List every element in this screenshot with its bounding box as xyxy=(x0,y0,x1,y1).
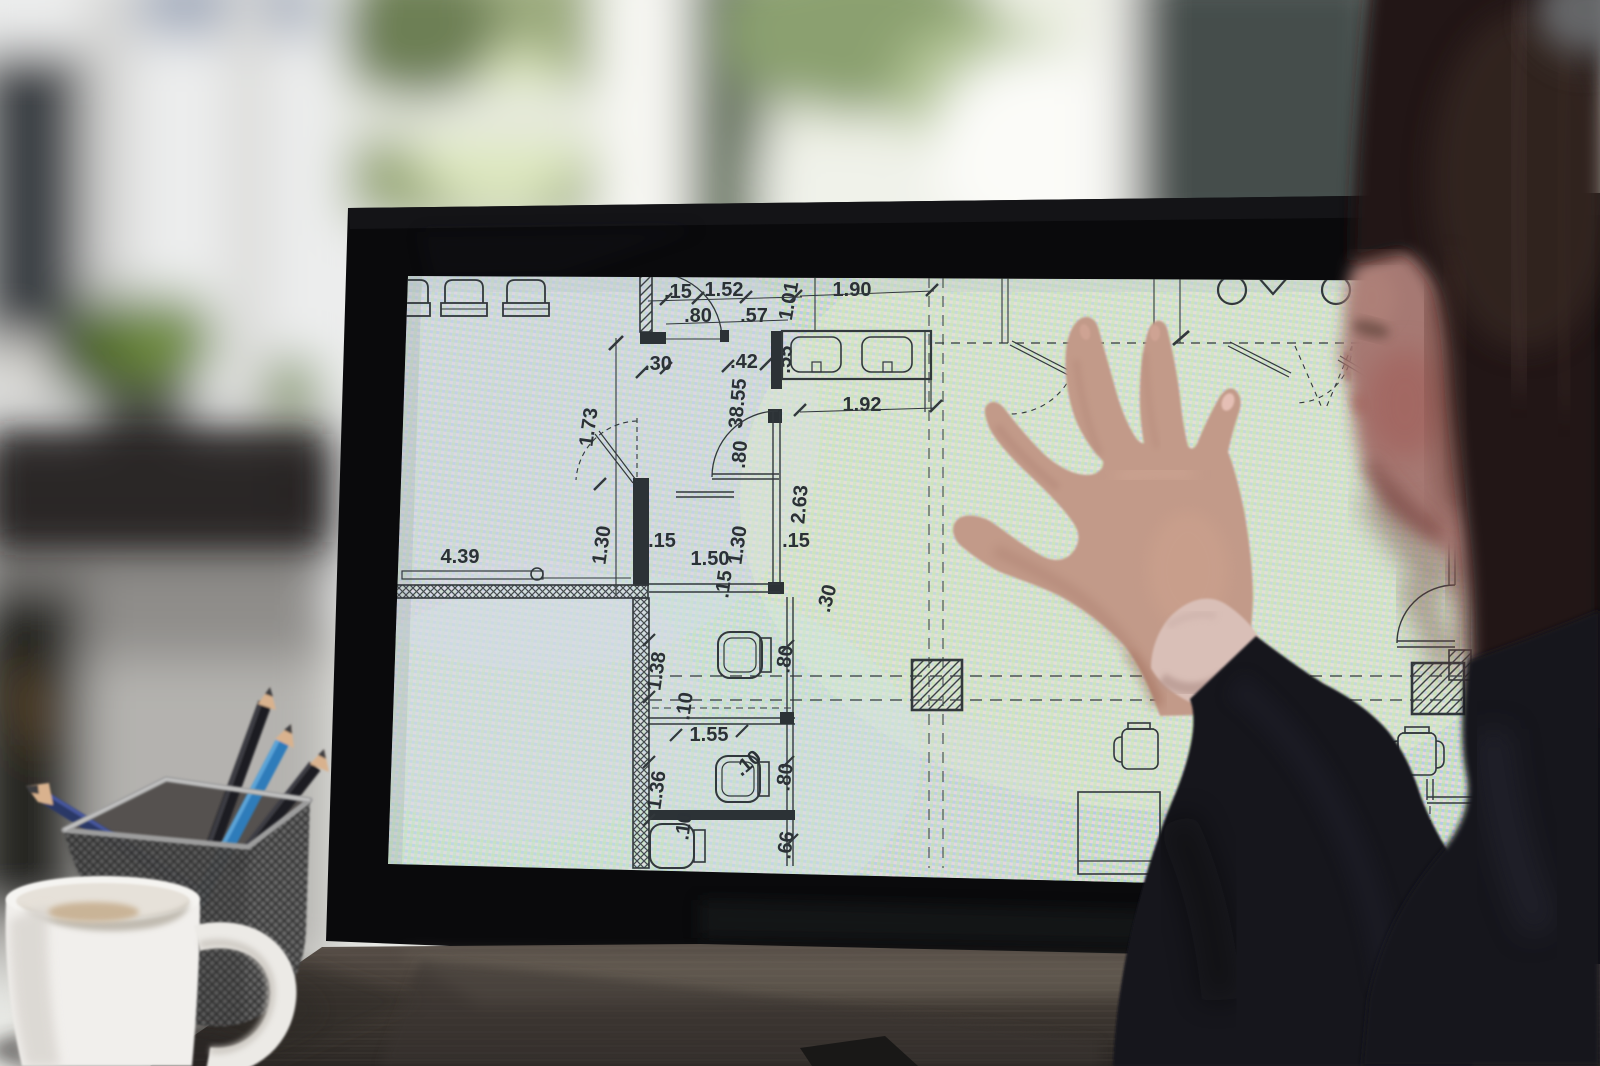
svg-text:4.39: 4.39 xyxy=(441,546,480,568)
svg-text:1.50: 1.50 xyxy=(691,548,730,570)
svg-text:.57: .57 xyxy=(740,305,768,327)
svg-text:.80: .80 xyxy=(728,440,752,470)
svg-text:2.63: 2.63 xyxy=(787,484,812,525)
svg-text:1.90: 1.90 xyxy=(833,279,872,301)
svg-text:.10: .10 xyxy=(671,811,697,842)
svg-text:.30: .30 xyxy=(644,353,672,375)
svg-text:1.52: 1.52 xyxy=(705,279,744,301)
svg-text:38.55: 38.55 xyxy=(725,378,751,430)
svg-text:.42: .42 xyxy=(730,351,758,373)
svg-text:1.92: 1.92 xyxy=(843,394,882,416)
svg-text:1.55: 1.55 xyxy=(690,724,729,746)
svg-text:.15: .15 xyxy=(648,530,676,552)
svg-text:.10: .10 xyxy=(672,691,698,722)
svg-text:.15: .15 xyxy=(782,530,810,552)
